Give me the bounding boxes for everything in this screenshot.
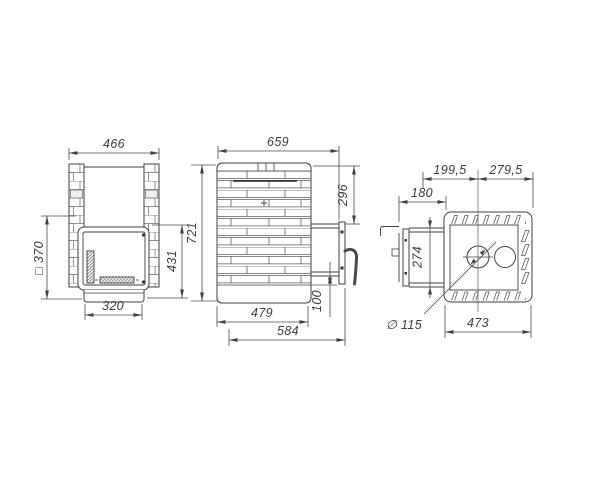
dim-label-466: 466	[103, 137, 125, 151]
door-frame-plate-plan	[403, 229, 409, 286]
dim-label-584: 584	[277, 324, 299, 338]
dim-label-721: 721	[185, 222, 199, 244]
door-hinge-bottom	[142, 280, 145, 283]
dim-label-274: 274	[411, 246, 425, 269]
stove-dimension-drawing: 466 □ 370 431 721 320	[0, 0, 600, 485]
front-view	[69, 164, 159, 302]
brick-vent-left	[71, 190, 83, 198]
dim-label-296: 296	[336, 184, 350, 207]
dim-tunnel-bottom-offset: 100	[310, 262, 337, 317]
door-handle	[87, 251, 94, 283]
technical-drawing-page: 466 □ 370 431 721 320	[0, 0, 600, 485]
dim-tunnel-length: 180	[399, 186, 446, 222]
dim-label-431: 431	[165, 250, 179, 272]
dim-label-199-5: 199,5	[433, 163, 466, 177]
inner-chamber	[450, 225, 518, 290]
top-slat-band-top	[450, 214, 526, 224]
top-slat-band-right	[519, 229, 531, 286]
side-slats	[217, 171, 311, 285]
dim-label-473: 473	[467, 316, 489, 330]
door-tunnel-side	[311, 224, 339, 276]
dim-overall-height: 721	[185, 165, 219, 301]
door-latch-plan	[392, 249, 399, 256]
dim-label-d115: ∅ 115	[386, 318, 422, 332]
dim-label-659: 659	[267, 135, 289, 149]
dim-label-370: □ 370	[32, 241, 46, 275]
frame-pin-bottom	[341, 267, 344, 270]
dim-label-180: 180	[411, 186, 433, 200]
plate-pin-bottom	[405, 272, 408, 275]
door-handle-side	[345, 249, 357, 284]
brick-vent-right	[146, 190, 158, 198]
dim-label-479: 479	[251, 306, 273, 320]
frame-pin-top	[341, 231, 344, 234]
plate-pin-top	[405, 239, 408, 242]
top-slat-band-bottom	[450, 291, 526, 301]
top-view	[381, 170, 533, 312]
door-handle-plan	[381, 227, 400, 237]
dim-label-279-5: 279,5	[488, 163, 522, 177]
dim-label-100: 100	[310, 290, 324, 312]
door-hinge-top	[142, 233, 145, 236]
dim-tunnel-width: 274	[411, 217, 433, 298]
dim-label-320: 320	[102, 299, 124, 313]
air-grille	[100, 277, 134, 283]
dim-top-to-tunnel: 296	[313, 166, 360, 224]
dim-body-width: 473	[445, 305, 531, 338]
dim-overall-width: 466	[69, 137, 159, 160]
